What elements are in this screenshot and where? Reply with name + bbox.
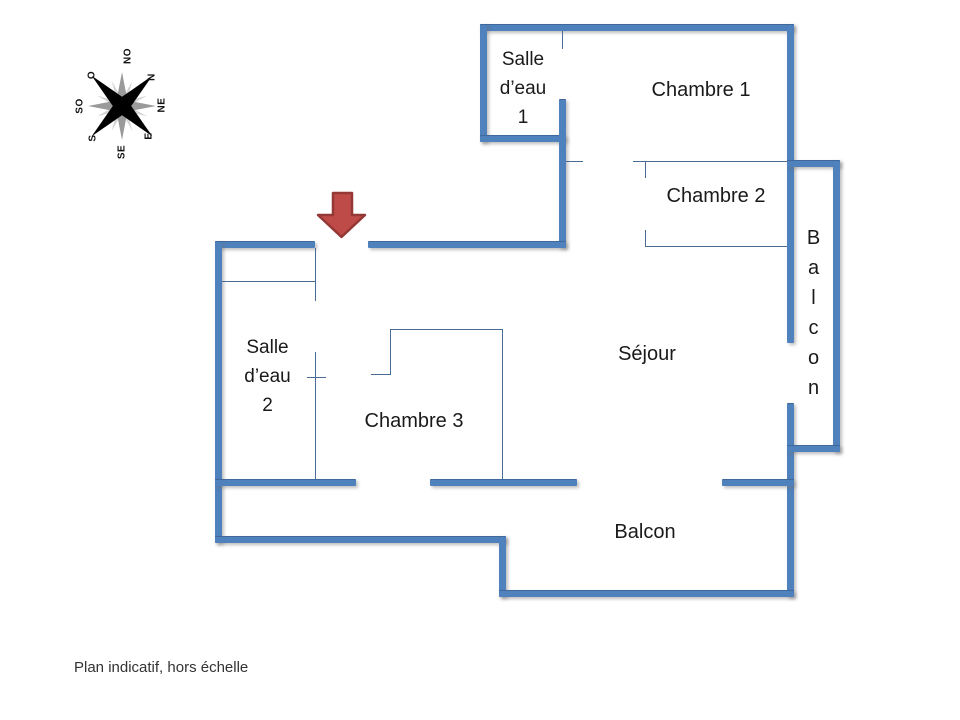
wall-balcony-step (499, 536, 506, 597)
wall-balcony-bottom1 (215, 536, 506, 543)
label-sejour: Séjour (547, 342, 747, 366)
compass-label-se: SE (117, 145, 128, 159)
compass-label-n: N (147, 73, 158, 81)
label-chambre-2: Chambre 2 (616, 184, 816, 208)
wall-bottom-seg3 (722, 479, 794, 486)
label-balcon-right-letter: B (807, 223, 820, 253)
partition-chambre2-top (633, 161, 787, 162)
partition-chambre2-bottom (645, 246, 787, 247)
wall-entrance-right (368, 241, 566, 248)
jamb-chambre3-door (371, 374, 391, 375)
floor-plan-page: NO N NE E SE S SO O Salle d’eau 1 Chambr… (0, 0, 960, 720)
wall-balcon-strip-bottom (787, 445, 840, 452)
jamb-chambre2-upper (645, 161, 646, 178)
jamb-chambre2-lower (645, 230, 646, 247)
label-chambre-3: Chambre 3 (314, 409, 514, 433)
wall-top (480, 24, 794, 31)
label-salle-eau-1-line1: Salle (481, 45, 565, 74)
label-salle-eau-1-line3: 1 (481, 103, 565, 132)
label-balcon-right-letter: l (811, 283, 815, 313)
wall-entrance-left (215, 241, 315, 248)
label-salle-eau-2-line1: Salle (220, 333, 315, 362)
label-balcon-right-letter: c (809, 313, 819, 343)
compass-label-so: SO (75, 98, 86, 113)
label-balcon-right-letter: o (808, 343, 819, 373)
label-salle-eau-1-line2: d’eau (481, 74, 565, 103)
wall-right-outer-lower (787, 403, 794, 597)
label-balcon-bottom: Balcon (545, 520, 745, 544)
label-balcon-right: B a l c o n (792, 223, 835, 403)
compass-label-s: S (88, 134, 99, 141)
partition-salle-eau-2-right-upper (315, 248, 316, 301)
label-salle-eau-2-line2: d’eau (220, 362, 315, 391)
compass-label-e: E (144, 132, 155, 139)
label-balcon-right-letter: n (808, 373, 819, 403)
partition-salle-eau-2-top (222, 281, 315, 282)
compass-label-no: NO (123, 48, 134, 64)
partition-chambre3-top (390, 329, 503, 330)
partition-chambre3-right (502, 329, 503, 479)
label-chambre-1: Chambre 1 (601, 78, 801, 102)
wall-balcony-bottom2 (499, 590, 794, 597)
label-salle-eau-2: Salle d’eau 2 (220, 333, 315, 420)
wall-bottom-seg1 (215, 479, 356, 486)
wall-salle-eau-1-bottom (480, 135, 566, 142)
label-salle-eau-1: Salle d’eau 1 (481, 45, 565, 132)
compass-label-o: O (87, 71, 98, 79)
entrance-arrow-icon (310, 188, 380, 248)
footer-note: Plan indicatif, hors échelle (74, 659, 248, 676)
compass-label-ne: NE (157, 98, 168, 113)
wall-bottom-seg2 (430, 479, 577, 486)
partition-hall-tick (566, 161, 583, 162)
partition-chambre3-left (390, 329, 391, 375)
label-balcon-right-letter: a (808, 253, 819, 283)
label-salle-eau-2-line3: 2 (220, 391, 315, 420)
